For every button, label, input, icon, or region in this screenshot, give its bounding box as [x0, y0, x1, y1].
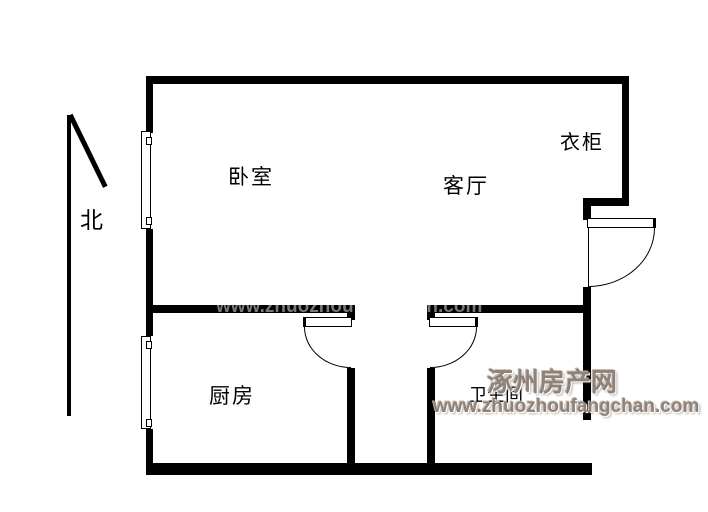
kitchen-door-leaf — [303, 317, 352, 327]
watermark-site-name: 涿州房产网 — [487, 369, 617, 395]
room-label-bedroom: 卧室 — [228, 167, 274, 188]
bedroom-window-cap-top — [146, 137, 152, 145]
floor-plan: 北 卧室 客厅 衣柜 厨房 卫生间 www.zhuozhoufangchan.c… — [0, 0, 708, 512]
kitchen-window-cap-top — [146, 341, 152, 349]
wall-bottom — [146, 463, 592, 475]
kitchen-window — [141, 336, 151, 429]
wall-top — [146, 76, 629, 84]
north-label: 北 — [80, 209, 103, 232]
kitchen-door-swing-arc — [304, 327, 351, 368]
kitchen-window-cap-bottom — [146, 419, 152, 427]
north-arrow-barb — [68, 114, 108, 188]
wall-right-upper — [622, 76, 629, 206]
entrance-door-swing-arc — [588, 228, 655, 287]
entrance-door-leaf — [587, 218, 656, 228]
wall-left-upper — [146, 76, 153, 133]
room-label-living: 客厅 — [443, 176, 489, 197]
watermark-faint-url: www.zhuozhoufangchan.com — [216, 297, 482, 316]
bedroom-window — [141, 131, 151, 229]
wall-left-middle — [146, 229, 153, 336]
room-label-kitchen: 厨房 — [209, 386, 255, 407]
wall-kitchen-right — [347, 368, 355, 463]
north-arrow-shaft — [67, 115, 71, 416]
bathroom-door-swing-arc — [430, 327, 477, 368]
watermark-site-url: www.zhuozhoufangchan.com — [433, 397, 699, 416]
bathroom-door-leaf — [429, 317, 478, 327]
bedroom-window-cap-bottom — [146, 217, 152, 225]
room-label-wardrobe: 衣柜 — [560, 133, 604, 153]
wall-entry-jamb-upper — [583, 198, 591, 220]
